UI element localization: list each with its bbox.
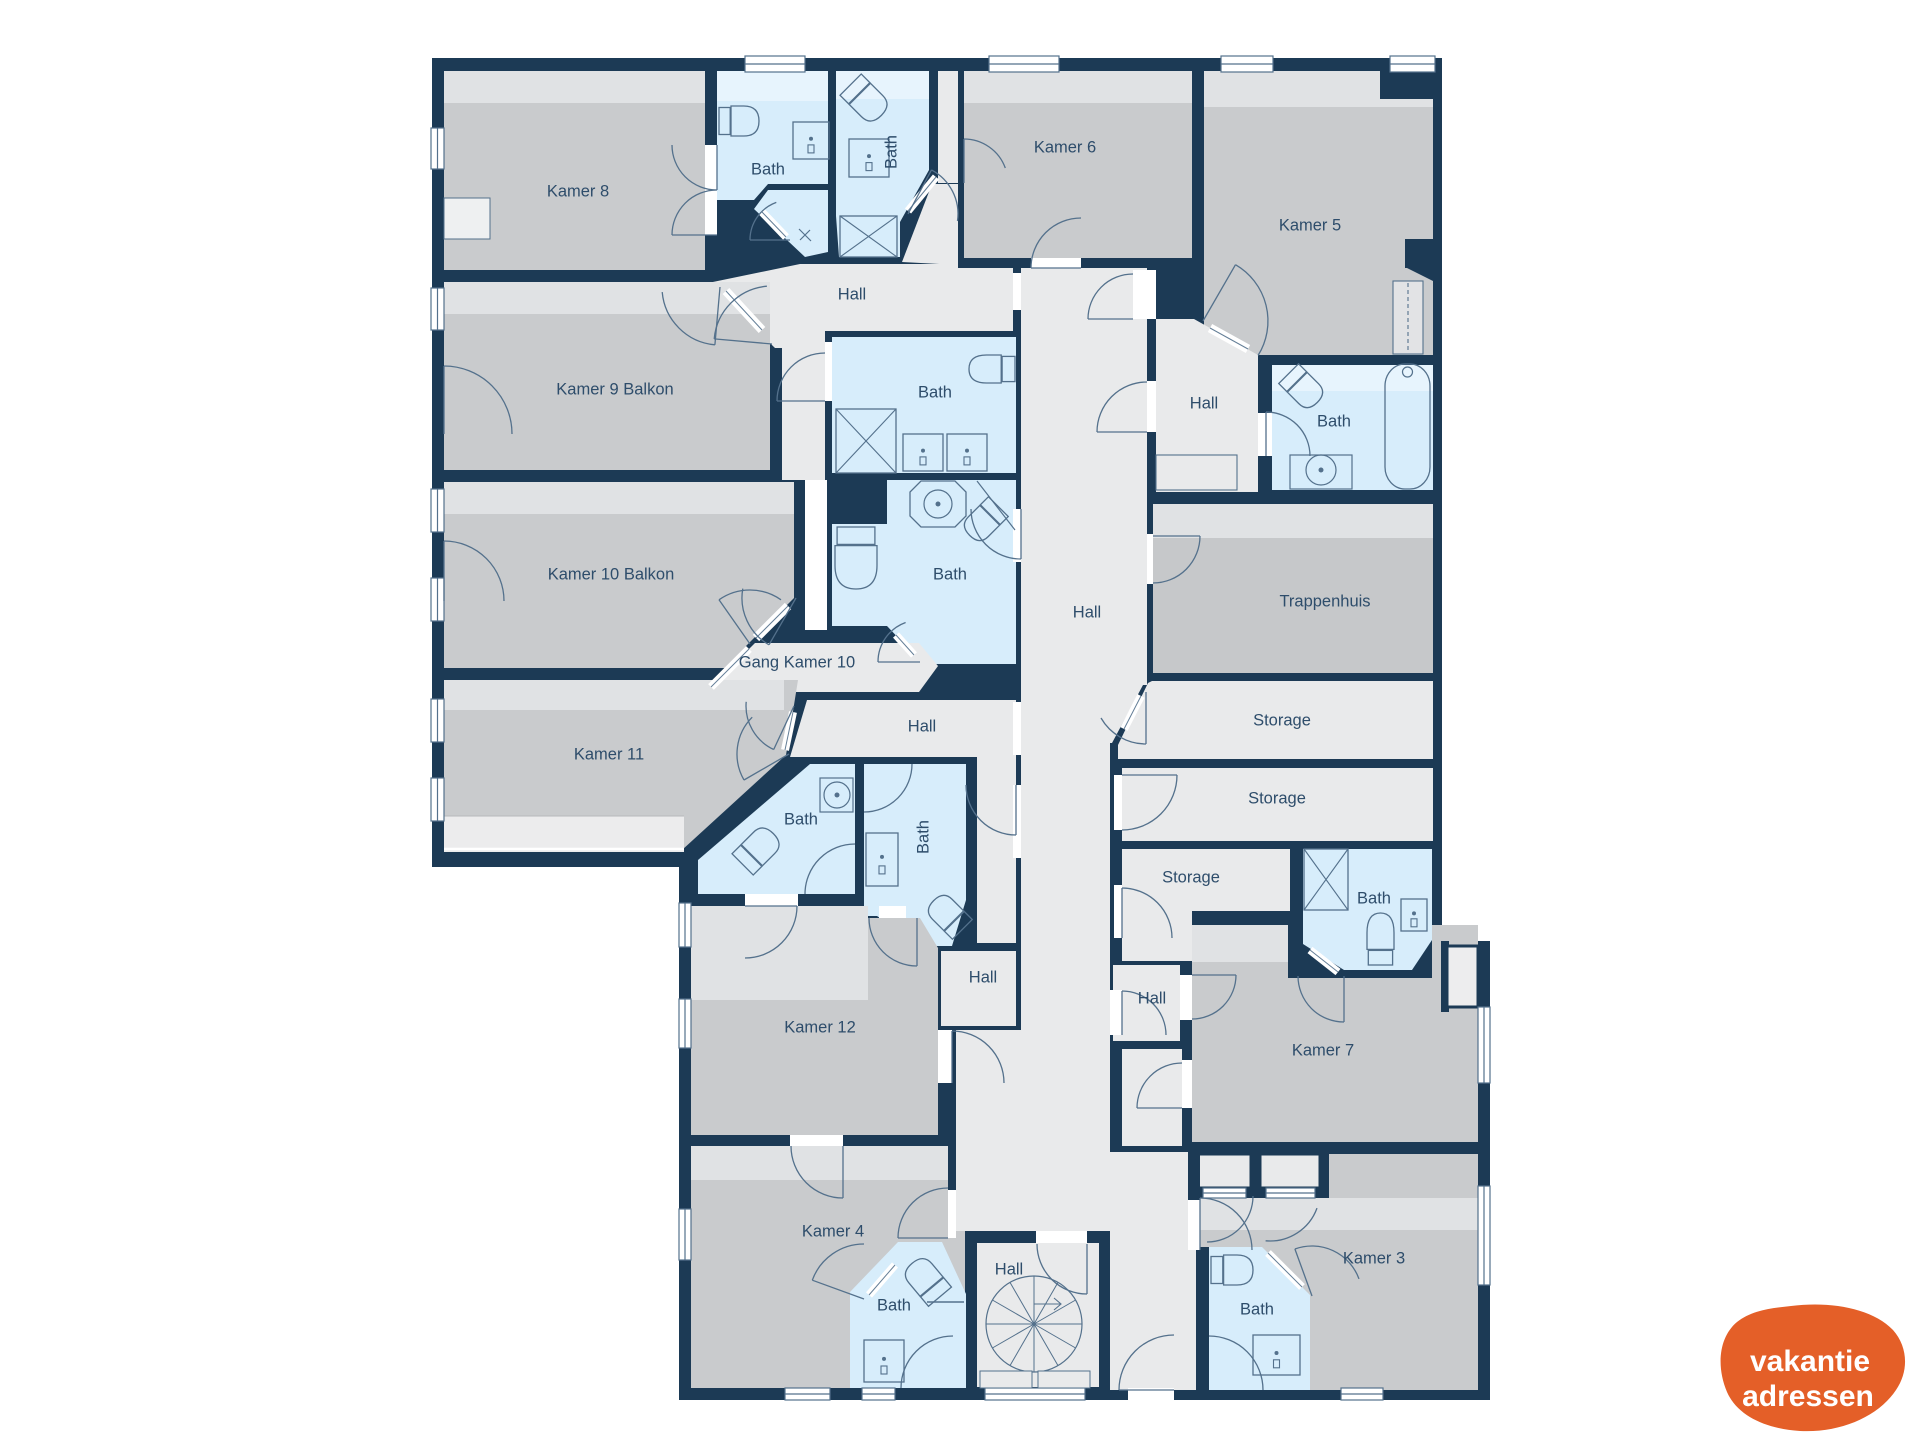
svg-text:adressen: adressen bbox=[1742, 1380, 1874, 1413]
svg-text:Gang Kamer 10: Gang Kamer 10 bbox=[739, 653, 855, 671]
svg-text:Storage: Storage bbox=[1162, 868, 1220, 886]
svg-text:Bath: Bath bbox=[784, 810, 818, 828]
svg-text:Bath: Bath bbox=[918, 383, 952, 401]
svg-text:Kamer 11: Kamer 11 bbox=[574, 745, 644, 763]
svg-text:Hall: Hall bbox=[1138, 989, 1166, 1007]
svg-text:Hall: Hall bbox=[1073, 603, 1101, 621]
svg-text:vakantie: vakantie bbox=[1750, 1345, 1870, 1378]
svg-text:Storage: Storage bbox=[1248, 789, 1306, 807]
svg-text:Bath: Bath bbox=[751, 160, 785, 178]
svg-text:Kamer 6: Kamer 6 bbox=[1034, 138, 1096, 156]
svg-text:Trappenhuis: Trappenhuis bbox=[1279, 592, 1370, 610]
svg-text:Kamer 3: Kamer 3 bbox=[1343, 1249, 1405, 1267]
svg-text:Bath: Bath bbox=[877, 1296, 911, 1314]
svg-text:Kamer 12: Kamer 12 bbox=[784, 1018, 856, 1036]
svg-text:Kamer 7: Kamer 7 bbox=[1292, 1041, 1354, 1059]
svg-text:Bath: Bath bbox=[1240, 1300, 1274, 1318]
svg-text:Hall: Hall bbox=[1190, 394, 1218, 412]
svg-text:Kamer 8: Kamer 8 bbox=[547, 182, 609, 200]
svg-text:Kamer 4: Kamer 4 bbox=[802, 1222, 864, 1240]
svg-text:Bath: Bath bbox=[1317, 412, 1351, 430]
svg-text:Hall: Hall bbox=[995, 1260, 1023, 1278]
svg-text:Hall: Hall bbox=[838, 285, 866, 303]
svg-text:Bath: Bath bbox=[914, 820, 932, 854]
svg-text:Kamer 10 Balkon: Kamer 10 Balkon bbox=[548, 565, 675, 583]
svg-text:Kamer 5: Kamer 5 bbox=[1279, 216, 1341, 234]
svg-text:Bath: Bath bbox=[933, 565, 967, 583]
svg-text:Storage: Storage bbox=[1253, 711, 1311, 729]
svg-text:Kamer 9 Balkon: Kamer 9 Balkon bbox=[556, 380, 673, 398]
svg-text:Bath: Bath bbox=[882, 135, 900, 169]
svg-text:Hall: Hall bbox=[969, 968, 997, 986]
svg-text:Hall: Hall bbox=[908, 717, 936, 735]
svg-text:Bath: Bath bbox=[1357, 889, 1391, 907]
